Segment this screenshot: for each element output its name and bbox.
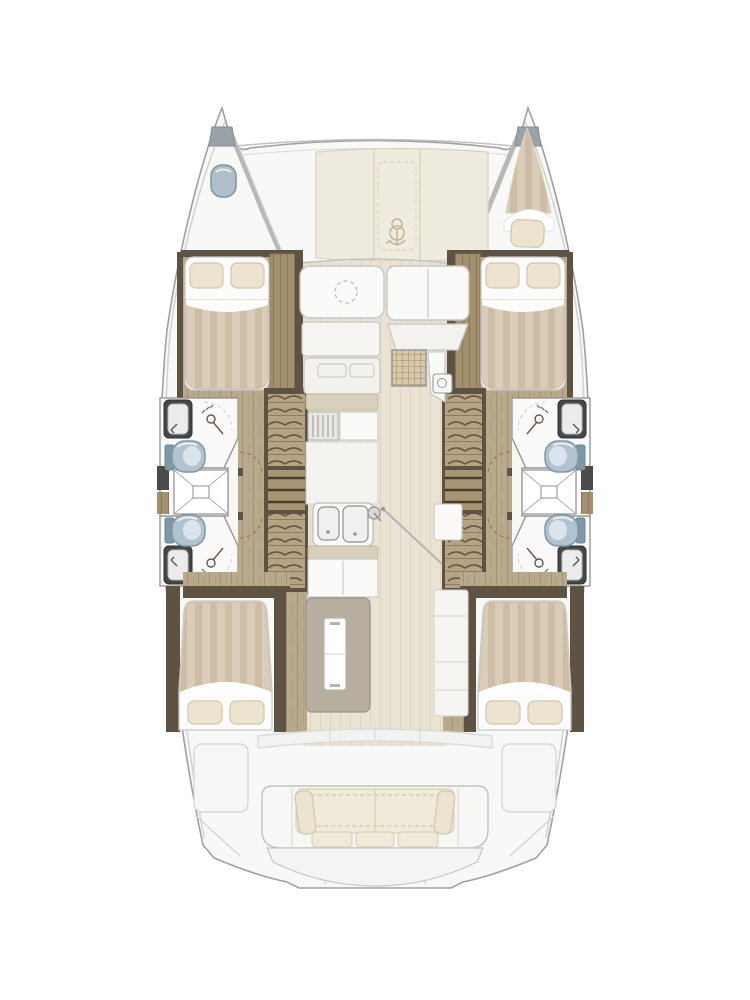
- cabin-sole-strip: [183, 572, 290, 586]
- galley: [306, 394, 381, 712]
- bed-duvet: [186, 300, 268, 389]
- corridor-sole: [238, 396, 264, 592]
- cabin-sole-inner: [286, 592, 307, 732]
- bed-pillow: [230, 701, 264, 724]
- port-aft-toilet-icon: [165, 515, 205, 546]
- aft-deck-locker-port: [194, 744, 248, 812]
- bed-pillow: [190, 263, 223, 288]
- settee-seat: [304, 358, 380, 394]
- toilet-seat: [183, 520, 201, 540]
- shower-outboard-wood: [157, 492, 169, 514]
- port-forward-washbasin: [164, 400, 192, 438]
- aft-cockpit: [262, 786, 488, 886]
- galley-counter-edge-aft: [308, 546, 378, 559]
- double-berth-aft: [179, 601, 272, 730]
- sink-drain-left: [326, 530, 330, 534]
- settee-back: [302, 322, 380, 356]
- port-aft-cabin: [166, 572, 307, 732]
- cabin-side-rail-in: [274, 592, 286, 732]
- dinette-back-panel: [388, 324, 468, 350]
- door-handle-1: [238, 468, 243, 476]
- sink-basin-right: [343, 506, 368, 542]
- aft-deck-locker-starboard: [502, 744, 556, 812]
- entry-door-handle: [381, 507, 385, 511]
- starboard-bow-pillow: [510, 219, 544, 248]
- port-forward-cabin: [177, 250, 303, 398]
- cabin-side-rail: [177, 252, 183, 398]
- bed-duvet: [180, 602, 271, 692]
- island-door-handle: [330, 622, 340, 625]
- toilet-seat: [183, 446, 201, 466]
- door-handle-2: [238, 512, 243, 520]
- wardrobe: [270, 254, 295, 398]
- port-forward-toilet-icon: [165, 441, 205, 472]
- sink-drain-right: [353, 532, 357, 536]
- foredeck-lounge: [316, 149, 488, 262]
- cockpit-seat-cushions: [312, 832, 438, 847]
- cabinet-small: [434, 504, 462, 540]
- sink-basin-left: [318, 507, 339, 540]
- galley-counter-edge: [306, 394, 378, 410]
- seat-cushion: [398, 832, 438, 847]
- port-bow-tip-cap: [209, 127, 235, 146]
- shower-drain: [193, 486, 209, 498]
- galley-counter-panel: [340, 412, 378, 440]
- forward-cockpit-seat: [300, 266, 384, 318]
- salon-settee-port: [302, 322, 380, 394]
- port-shower-stall: [157, 466, 228, 516]
- port-heads: [157, 398, 238, 586]
- cabin-side-rail-out: [166, 586, 180, 732]
- seat-cushion: [356, 832, 394, 847]
- cockpit-back-cushions: [295, 789, 456, 835]
- bed-pillow: [188, 701, 222, 724]
- bed-pillow: [231, 263, 264, 288]
- cabin-front-wall: [183, 586, 290, 598]
- galley-base-cabinet: [306, 442, 378, 504]
- port-companionway: [238, 388, 308, 594]
- cabinet-column: [434, 590, 468, 716]
- galley-sink: [313, 503, 381, 546]
- woven-bench: [392, 350, 426, 386]
- foredeck-cushion-panels: [316, 149, 488, 262]
- port-stairs: [264, 388, 308, 594]
- catamaran-floor-plan: [0, 0, 750, 1000]
- double-berth-forward: [185, 257, 269, 390]
- island-door-handle: [330, 684, 340, 687]
- nav-sink: [433, 374, 452, 393]
- seat-cushion: [312, 832, 352, 847]
- galley-island: [306, 598, 370, 712]
- stair-flight-forward: [268, 394, 305, 466]
- floor-plan-canvas: [0, 0, 750, 1000]
